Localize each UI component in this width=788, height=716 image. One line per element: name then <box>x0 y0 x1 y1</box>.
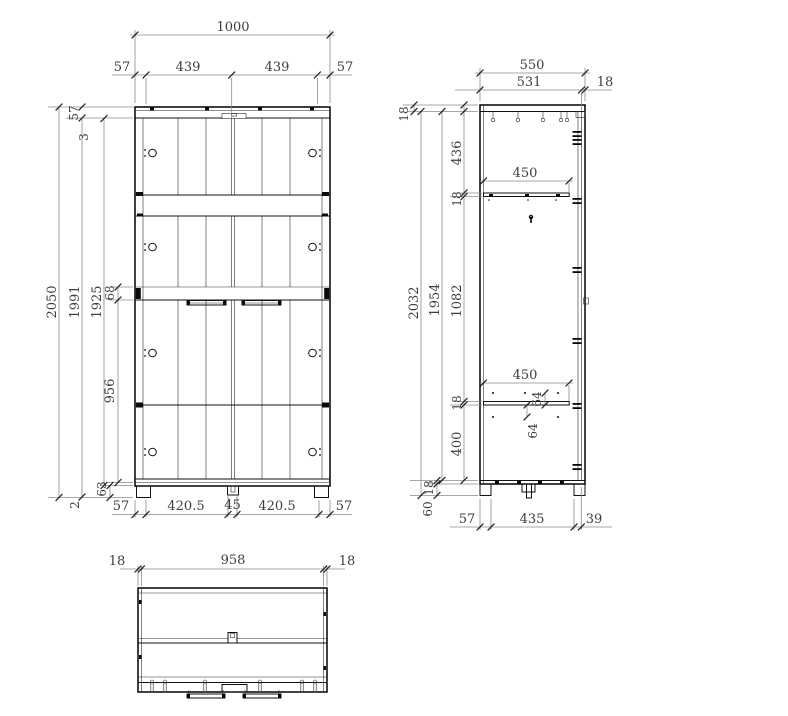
plan-inner-width-dim: 958 <box>221 553 246 568</box>
front-top-dim-439r: 439 <box>265 60 290 75</box>
front-height-total-dim: 2050 <box>45 285 60 318</box>
side-center-foot <box>522 484 535 492</box>
side-back-panel-dim: 18 <box>597 75 614 90</box>
front-mid-shelf-dim: 68 <box>103 285 117 300</box>
plan-right-overhang-dim: 18 <box>339 554 356 569</box>
lower-shelf <box>484 402 570 406</box>
side-height-inner-dim: 1954 <box>428 283 443 316</box>
lock-keyhole <box>529 215 533 223</box>
front-right-foot <box>315 486 329 498</box>
side-bottom-dim-57: 57 <box>459 512 476 527</box>
side-shelf-b-dim: 18 <box>450 395 464 410</box>
front-elevation-view: 1000 57 439 439 57 2050 1991 57 1925 3 6… <box>45 20 353 518</box>
side-depth-total-dim: 550 <box>520 58 545 73</box>
side-upper-shelf-depth-dim: 450 <box>513 166 538 181</box>
side-bottom-dim-435: 435 <box>520 512 545 527</box>
side-shelf-a-dim: 18 <box>450 191 464 206</box>
front-lower-section-dim: 956 <box>103 379 118 404</box>
side-depth-inner-dim: 531 <box>517 75 542 90</box>
plan-view: 18 958 18 <box>109 553 356 698</box>
side-front-foot <box>480 484 491 496</box>
front-bottom-dim-57l: 57 <box>113 499 130 514</box>
front-top-dim-57r: 57 <box>337 60 354 75</box>
side-section-view: 550 531 18 18 2032 1954 436 18 1082 18 4… <box>397 58 613 530</box>
front-bottom-dim-57r: 57 <box>336 499 353 514</box>
side-hole-offset-upper-dim: 64 <box>530 391 544 407</box>
side-height-total-dim: 2032 <box>407 286 422 319</box>
front-height-inner-dim: 1991 <box>68 285 83 318</box>
side-plinth-dim: 60 <box>421 501 435 516</box>
front-bottom-dim-420r: 420.5 <box>258 499 295 514</box>
front-bottom-dim-420l: 420.5 <box>167 499 204 514</box>
plan-handles <box>187 690 281 698</box>
technical-drawing: 1000 57 439 439 57 2050 1991 57 1925 3 6… <box>0 0 788 716</box>
plan-left-overhang-dim: 18 <box>109 554 126 569</box>
front-bottom-dim-45: 45 <box>224 498 241 513</box>
side-bottom-dim-39: 39 <box>586 512 603 527</box>
front-top-gap-dim: 3 <box>77 133 91 141</box>
front-bottom-rail-dim: 63 <box>95 481 109 496</box>
front-top-dim-439l: 439 <box>176 60 201 75</box>
door-plank-lines <box>178 118 290 479</box>
side-lower-section-dim: 400 <box>450 432 465 457</box>
side-upper-section-dim: 436 <box>450 141 465 166</box>
side-hole-offset-lower-dim: 64 <box>526 423 540 439</box>
side-top-panel-dim: 18 <box>397 106 411 121</box>
back-top-notch <box>576 112 585 118</box>
side-lower-shelf-depth-dim: 450 <box>513 368 538 383</box>
side-bottom-panel-dim: 18 <box>422 480 436 495</box>
front-top-panel-dim: 57 <box>67 105 81 120</box>
front-top-dim-57l: 57 <box>114 60 131 75</box>
front-center-foot <box>228 486 239 495</box>
front-left-foot <box>137 486 151 498</box>
drawing-sheet: 1000 57 439 439 57 2050 1991 57 1925 3 6… <box>0 0 788 716</box>
side-back-foot <box>574 484 585 496</box>
plan-center-recess <box>222 685 247 693</box>
front-total-width-dim: 1000 <box>216 20 249 35</box>
front-floor-gap-dim: 2 <box>68 501 82 509</box>
side-middle-section-dim: 1082 <box>450 284 465 317</box>
